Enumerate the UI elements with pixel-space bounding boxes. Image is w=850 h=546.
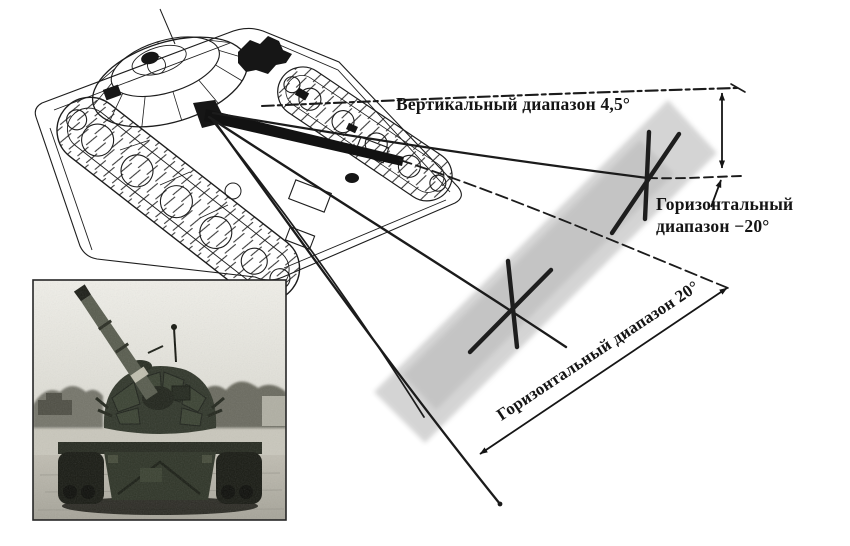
vertical-range-label: Вертикальный диапазон 4,5° <box>396 94 630 115</box>
horizontal-range-near-line2: диапазон −20° <box>656 216 793 238</box>
horizontal-range-near-line1: Горизонтальный <box>656 194 793 216</box>
horizontal-range-near-label: Горизонтальный диапазон −20° <box>656 194 793 237</box>
figure-canvas: Вертикальный диапазон 4,5° Горизонтальны… <box>0 0 850 546</box>
photo-inset <box>33 280 286 521</box>
smoke-launchers <box>238 36 292 74</box>
wireframe-tank <box>35 9 462 315</box>
photo-grain-overlay <box>33 280 286 520</box>
